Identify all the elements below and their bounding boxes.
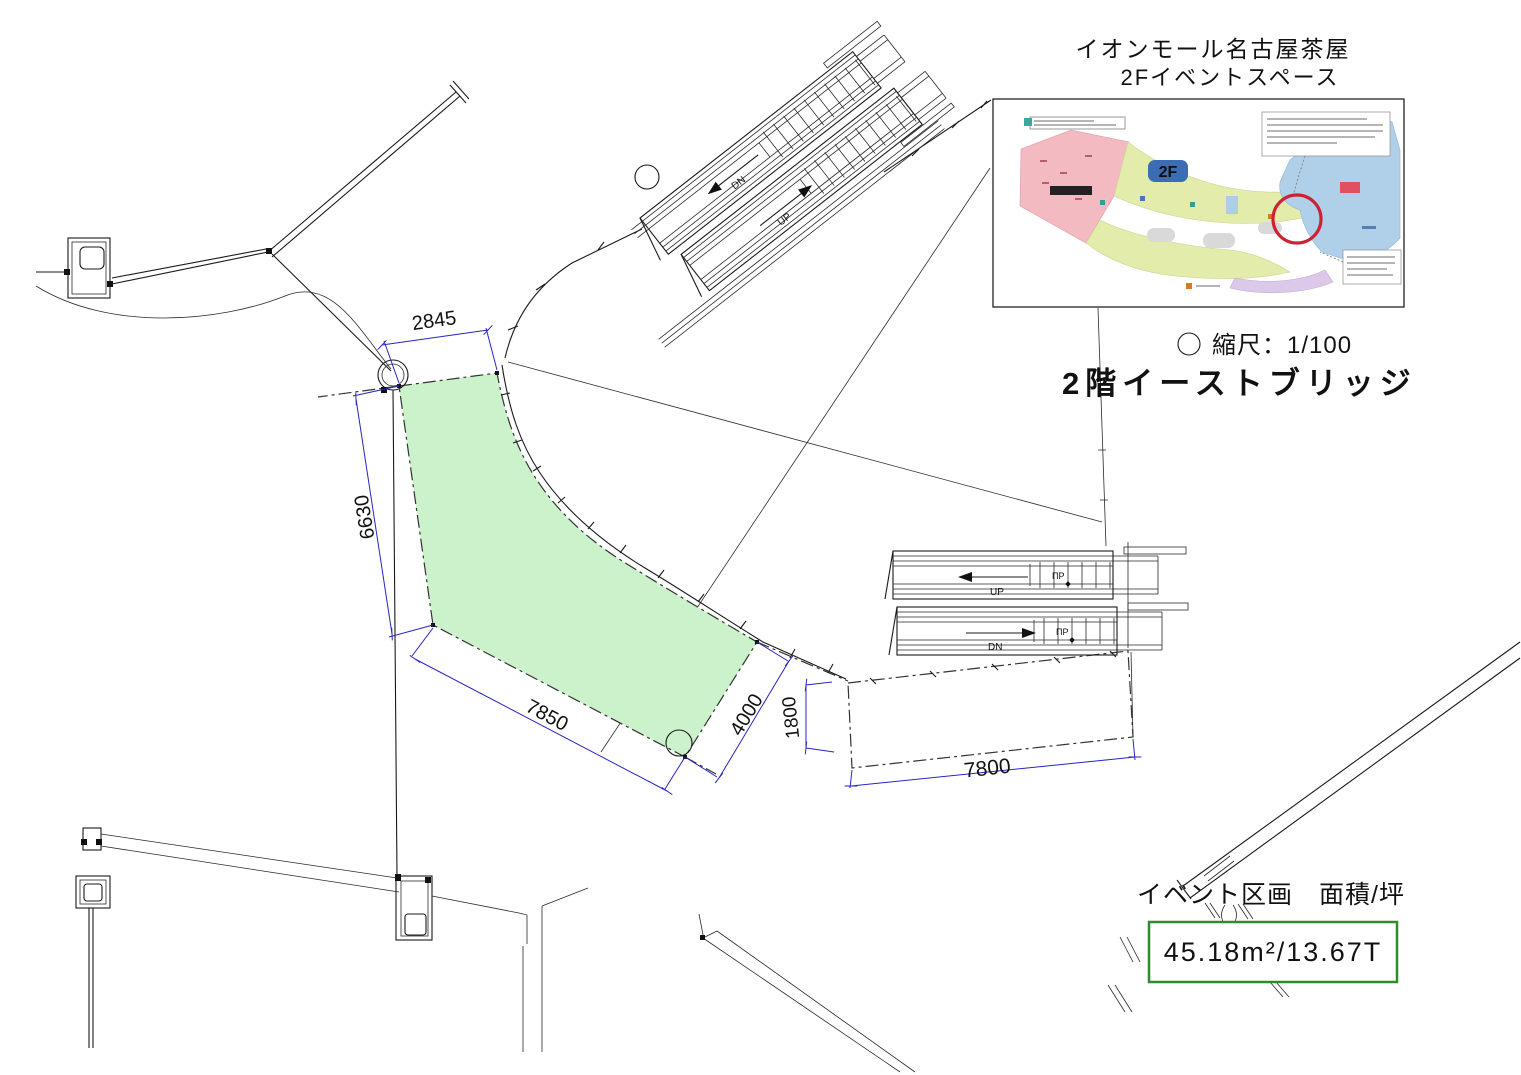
dimension-2845 [376, 325, 497, 383]
drawing-sheet: 2845 6630 7850 4000 1800 7800 [0, 0, 1521, 1075]
area-info: イベント区画 面積/坪 45.18m²/13.67T [1137, 881, 1405, 982]
event-area [318, 371, 848, 774]
scale-legend: 縮尺：1/100 [1178, 332, 1352, 359]
escalator-right-pair: UP ΠP DN ΠP [885, 542, 1188, 737]
inset-store-label-bar [1050, 186, 1092, 195]
arrow-left-icon [958, 572, 972, 582]
escalator-top-pair: DN UP [587, 16, 961, 347]
escalator-up-label: UP [990, 587, 1004, 598]
dimension-1800 [800, 679, 834, 755]
arrow-down-icon [705, 182, 722, 198]
event-area-polygon [399, 373, 757, 757]
escalator-top-up-label: UP [776, 211, 794, 228]
sheet-title-line2: 2Fイベントスペース [1120, 65, 1339, 90]
escalator-right-upper: UP ΠP [885, 547, 1186, 599]
reserved-zone-7800 [848, 651, 1133, 768]
escalator-marker-lower: ΠP [1056, 627, 1069, 637]
area-info-label: イベント区画 面積/坪 [1137, 881, 1405, 909]
dim-bottom-label: 7850 [522, 696, 572, 736]
escalator-right-lower: DN ΠP [889, 603, 1188, 655]
scale-circle-icon [1178, 333, 1200, 355]
floor-title: 2階イーストブリッジ [1062, 366, 1417, 401]
columns-bottom [76, 828, 915, 1072]
escalator-dn-label: DN [988, 642, 1002, 653]
dim-top-label: 2845 [411, 307, 458, 335]
dim-offset-label: 1800 [779, 695, 804, 739]
dim-length-label: 7800 [963, 755, 1012, 783]
dim-left-label: 6630 [351, 493, 380, 540]
floorplan-canvas: 2845 6630 7850 4000 1800 7800 [0, 0, 1521, 1075]
sheet-title-line1: イオンモール名古屋茶屋 [1076, 36, 1351, 62]
inset-map: 2F [993, 99, 1404, 307]
wall-joint-marker [266, 248, 272, 254]
floor-badge-label: 2F [1159, 164, 1178, 181]
escalator-marker-upper: ΠP [1052, 571, 1065, 581]
area-value: 45.18m²/13.67T [1164, 937, 1383, 967]
double-circle-column-outer [378, 360, 408, 390]
column-topleft [36, 238, 391, 369]
legend-icon [1024, 118, 1032, 126]
circle-marker-top [635, 165, 659, 189]
scale-label: 縮尺：1/100 [1212, 332, 1352, 359]
escalator-top-upper: DN [623, 21, 911, 263]
dim-rightedge-label: 4000 [726, 690, 768, 739]
inset-note-box-bottom [1343, 250, 1401, 284]
arrow-up-icon [798, 181, 815, 197]
